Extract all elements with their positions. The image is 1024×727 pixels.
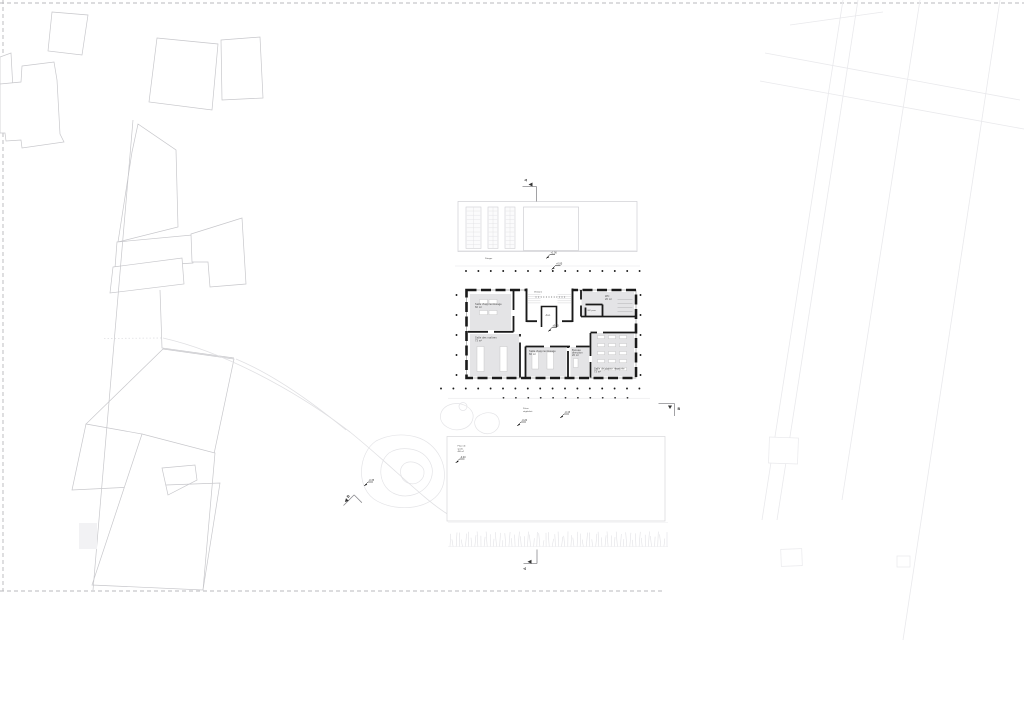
column-dot <box>527 388 529 390</box>
context-parcel <box>118 124 178 242</box>
section-letter: A <box>524 179 528 182</box>
column-dot <box>515 270 517 272</box>
grass-stroke <box>607 532 608 547</box>
field-label: sports <box>458 447 464 450</box>
section-letter: B <box>346 494 351 499</box>
road-line <box>842 0 920 500</box>
grass-stroke <box>660 534 661 546</box>
coat-hook-dot <box>551 296 552 297</box>
column-dot <box>640 314 642 316</box>
terrace-garden: Potager <box>455 202 640 267</box>
column-dot <box>601 388 603 390</box>
column-dot <box>601 270 603 272</box>
context-building <box>897 556 910 567</box>
column-dot <box>456 314 458 316</box>
level-value: -0.20 <box>522 419 528 422</box>
table-long <box>500 347 507 372</box>
desk <box>620 352 627 355</box>
room-area: 20 m² <box>605 297 612 301</box>
preau-label: Préau <box>523 407 529 410</box>
desk <box>609 336 616 339</box>
grass-stroke <box>512 538 513 546</box>
desk <box>609 344 616 347</box>
coat-hook-dot <box>561 296 562 297</box>
path-curve <box>236 359 346 430</box>
column-dot <box>502 270 504 272</box>
column-dot <box>465 270 467 272</box>
section-arrow-icon <box>529 183 533 187</box>
grass-stroke <box>518 532 519 547</box>
column-dot <box>640 374 642 376</box>
grass-stroke <box>456 533 457 547</box>
grass-stroke <box>537 532 538 547</box>
coat-hook-dot <box>564 296 565 297</box>
grass-stroke <box>650 536 651 547</box>
column-dot <box>576 388 578 390</box>
grass-stroke <box>552 539 553 547</box>
grass-stroke <box>571 535 572 546</box>
mound <box>440 403 473 429</box>
level-value: -0.35 <box>369 479 375 482</box>
column-dot <box>589 388 591 390</box>
desk <box>598 360 605 363</box>
grass-stroke <box>577 532 578 547</box>
field-area: 480 m² <box>458 450 465 453</box>
coat-hook-dot <box>538 296 539 297</box>
room-area: 73 m² <box>475 339 482 343</box>
column-dot <box>639 270 641 272</box>
table-long <box>477 347 484 372</box>
column-dot <box>456 374 458 376</box>
column-dot <box>626 270 628 272</box>
main-building: Salle d'apprentissage 60 m² Salle des ma… <box>467 287 637 378</box>
grass-stroke <box>500 533 501 547</box>
mound <box>401 462 425 484</box>
column-dot <box>626 388 628 390</box>
section-marker-b-right: B <box>659 404 681 417</box>
potager-label: Potager <box>485 257 493 260</box>
coat-hook-dot <box>559 296 560 297</box>
section-letter: A <box>523 567 527 570</box>
coat-hook-dot <box>548 296 549 297</box>
room-area: 60 m² <box>475 305 482 309</box>
level-marker: -0.35 <box>364 479 375 486</box>
column-dot <box>502 388 504 390</box>
context-building <box>149 38 218 110</box>
level-marker: +1.00 <box>546 252 557 259</box>
desk <box>598 344 605 347</box>
grass-stroke <box>484 537 485 547</box>
level-value: -0.15 <box>565 411 571 414</box>
column-dot <box>564 270 566 272</box>
grass-stroke <box>655 537 656 547</box>
column-dot <box>539 388 541 390</box>
grass-stroke <box>475 535 476 546</box>
desk <box>620 360 627 363</box>
grass-stroke <box>495 532 496 546</box>
coat-hook-dot <box>556 296 557 297</box>
grass-stroke <box>592 539 593 546</box>
room-area: 60 m² <box>529 352 536 356</box>
column-dot <box>614 270 616 272</box>
desk <box>574 359 579 368</box>
column-dot <box>465 388 467 390</box>
desk <box>620 344 627 347</box>
coat-hook-dot <box>535 296 536 297</box>
level-value: +1.00 <box>551 252 558 255</box>
level-value: +0.85 <box>556 263 563 266</box>
grass-stroke <box>493 539 494 547</box>
room-area: 73 m² <box>594 370 601 374</box>
grass-stroke <box>528 532 529 547</box>
column-dot <box>564 388 566 390</box>
column-dot <box>552 388 554 390</box>
grass-stroke <box>543 540 544 546</box>
mound <box>381 449 433 496</box>
context-buildings-left <box>0 12 263 590</box>
level-value: ±0.00 <box>553 325 560 328</box>
section-letter: B <box>678 407 681 411</box>
column-dot <box>614 388 616 390</box>
grass-stroke <box>534 538 535 546</box>
elevator-label: Asc. <box>546 313 552 317</box>
grass-stroke <box>598 532 599 547</box>
section-arrow-icon <box>668 406 672 410</box>
desk <box>598 336 605 339</box>
preau-label: végétalisé <box>523 410 533 413</box>
context-building <box>781 549 803 567</box>
grass-stroke <box>562 537 563 547</box>
column-dot <box>640 354 642 356</box>
level-value: -0.40 <box>460 456 466 459</box>
cloakroom-label: Vestiaire <box>534 291 543 294</box>
grass-stroke <box>515 535 516 547</box>
grass-stroke <box>664 539 665 547</box>
column-dot <box>552 270 554 272</box>
coat-hook-dot <box>546 296 547 297</box>
grass-stroke <box>564 536 565 547</box>
section-marker-a-bottom: A <box>523 550 537 571</box>
grass-stroke <box>605 535 606 546</box>
grass-stroke <box>596 534 597 547</box>
room-label: WC pers. <box>588 309 597 312</box>
table <box>480 311 488 315</box>
grass-stroke <box>648 532 649 547</box>
column-dot <box>456 354 458 356</box>
column-dot <box>440 388 442 390</box>
site-plan-drawing: Potager <box>0 0 1024 727</box>
field-label: Place de <box>458 446 467 448</box>
column-dot <box>640 294 642 296</box>
section-marker-a-top: A <box>523 179 537 202</box>
grass-stroke <box>555 534 556 546</box>
grass-stroke <box>630 533 631 547</box>
grass-stroke <box>573 538 574 547</box>
column-dot <box>514 388 516 390</box>
road-line <box>903 0 1000 640</box>
grass-stroke <box>658 532 659 547</box>
mound <box>475 413 500 434</box>
grass-stroke <box>505 533 506 546</box>
grass-stroke <box>621 534 622 547</box>
level-marker: -0.20 <box>517 419 528 426</box>
grass-stroke <box>520 536 521 546</box>
column-dot <box>640 334 642 336</box>
table-long <box>547 352 554 369</box>
sports-field <box>447 437 665 522</box>
column-dot <box>490 270 492 272</box>
grass-stroke <box>452 539 453 546</box>
desk <box>598 352 605 355</box>
column-dot <box>577 270 579 272</box>
desk <box>609 360 616 363</box>
grass-stroke <box>466 534 467 547</box>
vegetation-strip <box>450 532 667 547</box>
column-dot <box>456 334 458 336</box>
coat-hook-dot <box>554 296 555 297</box>
grass-stroke <box>529 535 530 547</box>
section-marker-b-left: B <box>340 491 362 513</box>
grass-stroke <box>641 538 642 547</box>
context-building <box>221 37 263 100</box>
grass-stroke <box>548 532 549 546</box>
site-plan-page: Potager <box>0 0 1024 727</box>
coat-hook-dot <box>541 296 542 297</box>
grass-stroke <box>450 534 451 547</box>
grass-stroke <box>582 540 583 547</box>
context-building <box>769 437 799 464</box>
skylight <box>524 207 579 251</box>
context-ghost <box>79 523 97 549</box>
grass-stroke <box>626 532 627 546</box>
grass-stroke <box>616 532 617 547</box>
column-dot <box>452 388 454 390</box>
grass-stroke <box>477 532 478 547</box>
context-roads-right <box>760 0 1024 640</box>
context-building-l <box>191 218 246 287</box>
road-line <box>765 53 1020 100</box>
grass-stroke <box>586 533 587 547</box>
column-dot <box>539 270 541 272</box>
coat-hook-dot <box>543 296 544 297</box>
column-dot <box>477 270 479 272</box>
column-dot <box>527 270 529 272</box>
path-dotted <box>104 338 163 339</box>
level-marker: -0.15 <box>560 411 571 418</box>
column-dot <box>456 294 458 296</box>
column-dot <box>490 388 492 390</box>
grass-stroke <box>461 540 462 547</box>
table <box>489 311 497 315</box>
grass-stroke <box>486 532 487 547</box>
grass-stroke <box>539 533 540 546</box>
context-building <box>48 12 88 55</box>
grass-stroke <box>614 537 615 546</box>
grass-stroke <box>639 532 640 547</box>
column-dot <box>638 388 640 390</box>
desk <box>609 352 616 355</box>
desk <box>620 336 627 339</box>
grass-stroke <box>509 532 510 547</box>
column-dot <box>477 388 479 390</box>
grass-stroke <box>635 533 636 546</box>
mound <box>459 403 467 411</box>
room-area: 20 m² <box>572 353 579 357</box>
road-line <box>790 12 883 25</box>
column-dot <box>589 270 591 272</box>
grass-stroke <box>471 538 472 547</box>
